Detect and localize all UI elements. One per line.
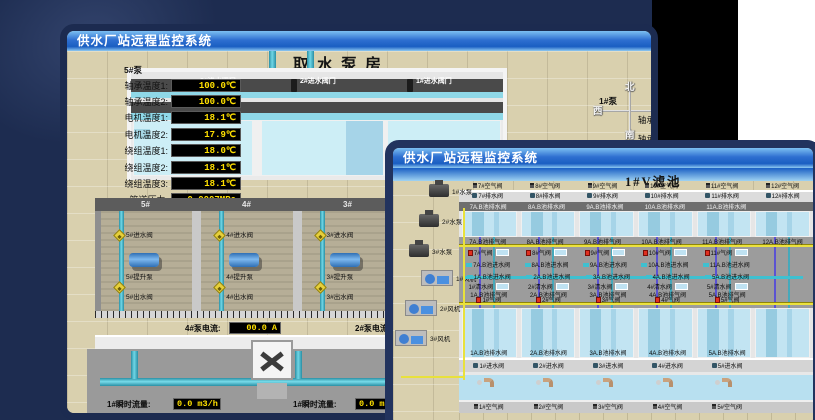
bay-number: 5# [141,200,150,209]
inlet-valve-item[interactable]: 1#进水阀 [473,361,504,370]
gas-valve-item[interactable]: 4#气阀 [655,295,680,304]
pipe-icon [705,275,711,279]
inlet-valve-item[interactable]: 3A.B池进水阀 [586,272,630,281]
air-valve-item[interactable]: 5#空气阀 [712,402,742,411]
fan-icon [405,300,437,316]
lift-pump-icon[interactable] [129,253,159,267]
desktop-backdrop: 供水厂站远程监控系统 取水泵房 3#进水阀门 2#进水阀门 1#进水阀门 5#泵 [0,0,815,420]
gas-valve-item[interactable]: 1#气阀 [476,295,501,304]
pipe-icon [646,275,652,279]
foreground-ground [459,413,813,420]
red-valve-icon [596,297,601,303]
red-valve-icon [476,297,481,303]
drain-valve-item[interactable]: 9#排水阀 [587,191,618,200]
basin-icon [674,249,687,256]
elbow-pipe-icon [543,378,553,387]
readout-row: 绕组温度1: 18.0℃ [85,143,245,159]
readout-label: 轴承温度1: [85,79,171,92]
value-display: 18.1℃ [171,177,241,190]
value-display: 100.0℃ [171,79,241,92]
basin-icon [675,283,688,290]
flow-value: 0.0 m3/h [173,398,221,410]
gas-valve-item[interactable]: 7#气阀 [468,248,509,257]
air-valve-item[interactable]: 12#空气阀 [766,181,799,190]
valve-icon [653,404,657,409]
pipe-icon [703,263,709,267]
filter-pool-cell[interactable] [462,211,517,237]
readout-label: 绕组温度1: [85,144,171,157]
water-pump-unit[interactable]: 2#水泵 [419,214,462,227]
readout-label: 轴承温度1: [579,114,651,126]
pump-bay: 3#进水阀 3#提升泵 3#出水阀 [293,211,393,311]
filter-pool-cell[interactable] [755,211,810,237]
valve-icon [474,404,478,409]
valve-icon [588,183,592,188]
readout-label: 电机温度1: [85,111,171,124]
pipe-icon [586,275,592,279]
blower-unit[interactable]: 3#风机 [395,330,450,346]
pool-drain-valve-item[interactable]: 11A.B池排水阀 [706,202,746,211]
pool-drain-valve-item[interactable]: 9A.B池排水阀 [586,202,623,211]
valve-icon [652,363,657,368]
air-valve-item[interactable]: 3#空气阀 [593,402,623,411]
valve-icon [533,363,538,368]
drain-valve-item[interactable]: 12#排水阀 [766,191,800,200]
elbow-pipe-icon [722,378,732,387]
valve-icon [473,363,478,368]
readout-row: 绕组温度3: 18.1℃ [85,175,245,191]
elbow-pipe-icon [484,378,494,387]
exhaust-valve-item[interactable]: 9A.B池排气阀 [584,237,621,246]
valve-icon [472,193,477,198]
valve-icon [645,193,650,198]
inlet-valve-item[interactable]: 11A.B池进水阀 [703,260,750,269]
inlet-valve-item[interactable]: 4A.B池进水阀 [646,272,690,281]
titlebar[interactable]: 供水厂站远程监控系统 [393,148,813,168]
titlebar[interactable]: 供水厂站远程监控系统 [67,31,651,51]
basin-icon [615,283,628,290]
inlet-valve-item[interactable]: 7A.B池进水阀 [466,260,510,269]
valve-icon [766,193,771,198]
bay-pipe [219,211,224,311]
basin-icon [556,283,569,290]
inlet-valve-item[interactable]: 2#进水阀 [533,361,564,370]
inlet-valve-item[interactable]: 2A.B池进水阀 [526,272,570,281]
window-title: 供水厂站远程监控系统 [77,34,212,48]
air-valve-item[interactable]: 11#空气阀 [706,181,739,190]
gas-valve-item[interactable]: 2#气阀 [536,295,561,304]
pool-drain-valve-item[interactable]: 2A.B池排水阀 [530,348,567,357]
exhaust-valve-item[interactable]: 11A.B池排气阀 [702,237,742,246]
value-display: 18.1℃ [171,161,241,174]
air-valve-item[interactable]: 2#空气阀 [534,402,564,411]
blower-unit[interactable]: 2#风机 [405,300,460,316]
exhaust-valve-item[interactable]: 12A.B池排气阀 [762,237,802,246]
lift-pump-icon[interactable] [330,253,360,267]
gas-valve-item[interactable]: 10#气阀 [643,248,687,257]
value-display: 18.0℃ [171,144,241,157]
drain-valve-item[interactable]: 10#排水阀 [645,191,679,200]
pool-drain-valve-item[interactable]: 8A.B池排水阀 [528,202,565,211]
pump-icon [429,184,449,197]
valve-icon [712,363,717,368]
exhaust-valve-item[interactable]: 7A.B池排气阀 [469,237,506,246]
pump-bay: 4#进水阀 4#提升泵 4#出水阀 [192,211,292,311]
inlet-valve-item[interactable]: 1A.B池进水阀 [467,272,511,281]
air-valve-item[interactable]: 9#空气阀 [588,181,618,190]
pipe-icon [641,263,647,267]
red-valve-icon [536,297,541,303]
basin-icon [735,283,748,290]
readout-label: 绕组温度3: [85,177,171,190]
valve-icon [587,193,592,198]
red-valve-icon [468,250,473,256]
value-display: 18.1℃ [171,111,241,124]
inlet-valve-item[interactable]: 4#进水阀 [652,361,683,370]
pipe-icon [467,275,473,279]
elbow-pipe-icon [603,378,613,387]
valve-icon [530,183,534,188]
exhaust-valve-item[interactable]: 8A.B池排气阀 [527,237,564,246]
inlet-valve-item[interactable]: 5#进水阀 [712,361,743,370]
air-valve-item[interactable]: 4#空气阀 [653,402,683,411]
valve-icon [712,404,716,409]
valve-icon [645,183,649,188]
basin-icon [554,249,567,256]
air-header-pipe [401,376,465,378]
basin-icon [496,249,509,256]
readout-label: 电机温度2: [85,128,171,141]
gas-valve-item[interactable]: 9#气阀 [585,248,626,257]
outlet-branch-pipe [295,351,302,379]
value-display: 17.9℃ [171,128,241,141]
inlet-valve-item[interactable]: 8A.B池进水阀 [525,260,569,269]
elbow-pipe-icon [663,378,673,387]
valve-icon [534,404,538,409]
red-valve-icon [715,297,720,303]
filter-grid: 7#空气阀8#空气阀9#空气阀10#空气阀11#空气阀12#空气阀 7#排水阀8… [459,180,813,420]
valve-icon [593,404,597,409]
valve-icon [705,193,710,198]
pump-5-header: 5#泵 [124,64,142,76]
black-corner-panel [652,0,738,140]
flow-label: 1#瞬时流量: [107,399,151,410]
white-corner-area [738,0,815,142]
gas-valve-item[interactable]: 11#气阀 [705,248,749,257]
readout-row: 电机温度1: 18.1℃ [85,110,245,126]
pump-icon [409,244,429,257]
valve-icon [530,193,535,198]
drain-valve-item[interactable]: 7#排水阀 [472,191,503,200]
pool-drain-valve-item[interactable]: 3A.B池排水阀 [589,348,626,357]
red-valve-icon [655,297,660,303]
air-valve-item[interactable]: 8#空气阀 [530,181,560,190]
pump-1-readouts: 1#泵 轴承温度1:轴承温度2: [579,95,651,145]
pipe-icon [526,275,532,279]
filter-pool-cell[interactable] [638,211,693,237]
inlet-valve-item[interactable]: 5A.B池进水阀 [705,272,749,281]
readout-row: 电机温度2: 17.9℃ [85,126,245,142]
red-valve-icon [526,250,531,256]
valve-icon [407,79,413,92]
inlet-valve-item[interactable]: 9A.B池进水阀 [583,260,627,269]
readout-row: 轴承温度1: 100.0℃ [85,77,245,93]
bay-number: 3# [343,200,352,209]
drain-valve-item[interactable]: 11#排水阀 [705,191,739,200]
inlet-valve-item[interactable]: 3#进水阀 [593,361,624,370]
basin-icon [735,249,748,256]
valve-icon [473,183,477,188]
filter-pool-cell[interactable] [697,211,752,237]
pool-drain-valve-item[interactable]: 5A.B池排水阀 [709,348,746,357]
window-title: 供水厂站远程监控系统 [403,151,538,165]
readout-label: 绕组温度2: [85,161,171,174]
readout-row: 轴承温度2: 100.0℃ [85,93,245,109]
red-valve-icon [643,250,648,256]
readout-row: 绕组温度2: 18.1℃ [85,159,245,175]
valve-icon [706,183,710,188]
red-valve-icon [585,250,590,256]
pipe-icon [466,263,472,267]
fan-icon [421,270,453,286]
valve-icon [766,183,770,188]
bay-number: 4# [242,200,251,209]
air-valve-item[interactable]: 10#空气阀 [645,181,678,190]
current-label: 4#泵电流: [185,323,221,334]
water-pump-unit[interactable]: 3#水泵 [409,244,452,257]
inlet-gate-valve[interactable]: 1#进水阀门 [407,72,452,92]
gas-valve-item[interactable]: 5#气阀 [715,295,740,304]
window-v-filter: 供水厂站远程监控系统 1#V滤池 1#水泵 2#水泵 3#水泵 1#风机 2#风… [385,140,815,420]
bay-pipe [119,211,124,311]
pool-drain-valve-item[interactable]: 4A.B池排水阀 [649,348,686,357]
flow-meter-icon[interactable] [251,340,293,399]
red-valve-icon [705,250,710,256]
filter-pool-cell[interactable] [755,308,810,358]
pool-drain-valve-item[interactable]: 1A.B池排水阀 [470,348,507,357]
flow-label: 1#瞬时流量: [293,399,337,410]
exhaust-valve-item[interactable]: 10A.B池排气阀 [641,237,681,246]
pipe-icon [583,263,589,267]
pool-drain-valve-item[interactable]: 7A.B池排水阀 [470,202,507,211]
gas-valve-item[interactable]: 8#气阀 [526,248,567,257]
inlet-valve-item[interactable]: 10A.B池进水阀 [641,260,688,269]
basin-icon [612,249,625,256]
bay-pipe [320,211,325,311]
inlet-gate-valve[interactable]: 2#进水阀门 [291,72,336,92]
fan-icon [395,330,427,346]
pipe-icon [525,263,531,267]
outlet-branch-pipe [131,351,138,379]
readout-label: 轴承温度2: [85,95,171,108]
pump-icon [419,214,439,227]
air-valve-item[interactable]: 7#空气阀 [473,181,503,190]
valve-icon [593,363,598,368]
filter-scene: 1#V滤池 1#水泵 2#水泵 3#水泵 1#风机 2#风机 3#风机 7#空气… [393,168,813,420]
air-valve-item[interactable]: 1#空气阀 [474,402,504,411]
pool-drain-valve-item[interactable]: 10A.B池排水阀 [645,202,685,211]
lift-pump-icon[interactable] [229,253,259,267]
gas-valve-item[interactable]: 3#气阀 [596,295,621,304]
value-display: 100.0℃ [171,95,241,108]
valve-icon [291,79,297,92]
basin-icon [496,283,509,290]
current-value: 00.0 A [229,322,281,334]
filter-pool-cell[interactable] [521,211,576,237]
drain-valve-item[interactable]: 8#排水阀 [530,191,561,200]
pump-bay: 5#进水阀 5#提升泵 5#出水阀 [101,211,192,311]
filter-pool-cell[interactable] [579,211,634,237]
